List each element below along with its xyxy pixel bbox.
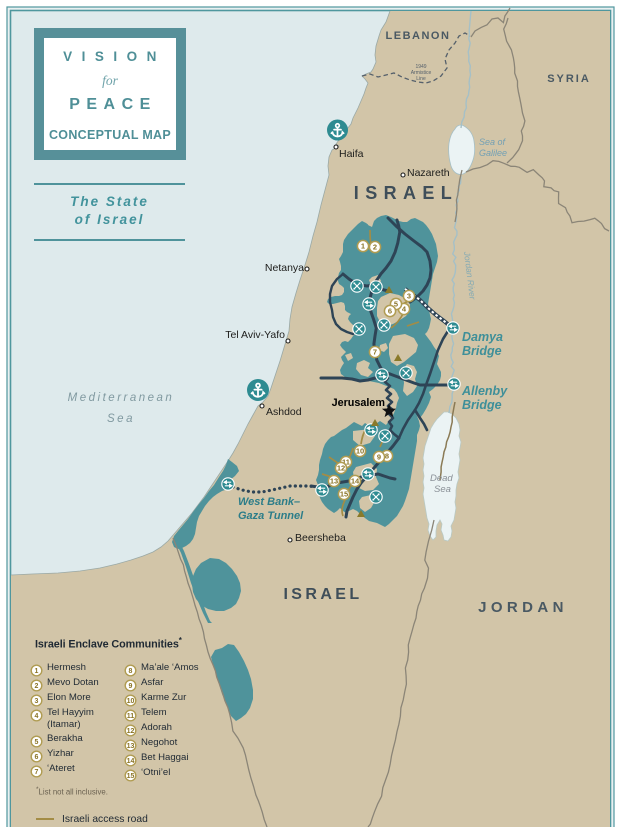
- svg-text:Haifa: Haifa: [339, 148, 364, 160]
- svg-text:Sea: Sea: [434, 484, 451, 495]
- svg-text:Sea: Sea: [107, 413, 135, 425]
- svg-text:11: 11: [127, 713, 135, 720]
- svg-text:Tel Aviv-Yafo: Tel Aviv-Yafo: [225, 329, 285, 341]
- svg-text:JORDAN: JORDAN: [478, 599, 568, 616]
- svg-text:12: 12: [127, 728, 135, 735]
- svg-text:ISRAEL: ISRAEL: [354, 183, 458, 203]
- svg-text:5: 5: [35, 739, 39, 746]
- svg-text:10: 10: [356, 447, 364, 456]
- svg-text:8: 8: [385, 452, 389, 461]
- svg-text:2: 2: [373, 243, 377, 252]
- svg-text:6: 6: [35, 754, 39, 761]
- svg-text:7: 7: [35, 769, 39, 776]
- svg-text:8: 8: [129, 668, 133, 675]
- svg-text:Netanya: Netanya: [265, 262, 304, 274]
- svg-text:12: 12: [337, 464, 345, 473]
- svg-text:14: 14: [127, 758, 135, 765]
- svg-text:Bridge: Bridge: [462, 344, 502, 358]
- svg-text:Allenby: Allenby: [461, 384, 508, 398]
- svg-text:Galilee: Galilee: [479, 148, 507, 158]
- svg-text:Dead: Dead: [430, 473, 453, 484]
- svg-text:Ashdod: Ashdod: [266, 406, 302, 418]
- svg-text:SYRIA: SYRIA: [547, 73, 591, 85]
- svg-text:Mediterranean: Mediterranean: [68, 392, 175, 404]
- svg-text:Gaza Tunnel: Gaza Tunnel: [238, 510, 304, 522]
- svg-text:10: 10: [127, 698, 135, 705]
- svg-text:ISRAEL: ISRAEL: [283, 586, 362, 603]
- svg-text:Bridge: Bridge: [462, 398, 502, 412]
- svg-text:7: 7: [373, 348, 377, 357]
- svg-text:9: 9: [377, 453, 381, 462]
- svg-text:9: 9: [129, 683, 133, 690]
- svg-text:2: 2: [35, 683, 39, 690]
- svg-text:Jerusalem: Jerusalem: [332, 397, 385, 409]
- svg-text:3: 3: [407, 292, 411, 301]
- svg-text:Beersheba: Beersheba: [295, 532, 346, 544]
- svg-text:1: 1: [361, 242, 365, 251]
- svg-text:15: 15: [340, 490, 348, 499]
- svg-text:13: 13: [330, 477, 338, 486]
- svg-text:4: 4: [35, 713, 39, 720]
- svg-text:6: 6: [388, 307, 392, 316]
- svg-text:1: 1: [35, 668, 39, 675]
- svg-text:Damya: Damya: [462, 330, 503, 344]
- svg-text:Nazareth: Nazareth: [407, 167, 450, 179]
- svg-text:LEBANON: LEBANON: [386, 30, 451, 42]
- svg-text:West Bank–: West Bank–: [238, 496, 300, 508]
- svg-text:3: 3: [35, 698, 39, 705]
- svg-text:Sea of: Sea of: [479, 137, 507, 147]
- svg-text:Line: Line: [416, 76, 426, 82]
- svg-text:14: 14: [351, 477, 360, 486]
- svg-text:15: 15: [127, 773, 135, 780]
- svg-text:13: 13: [127, 743, 135, 750]
